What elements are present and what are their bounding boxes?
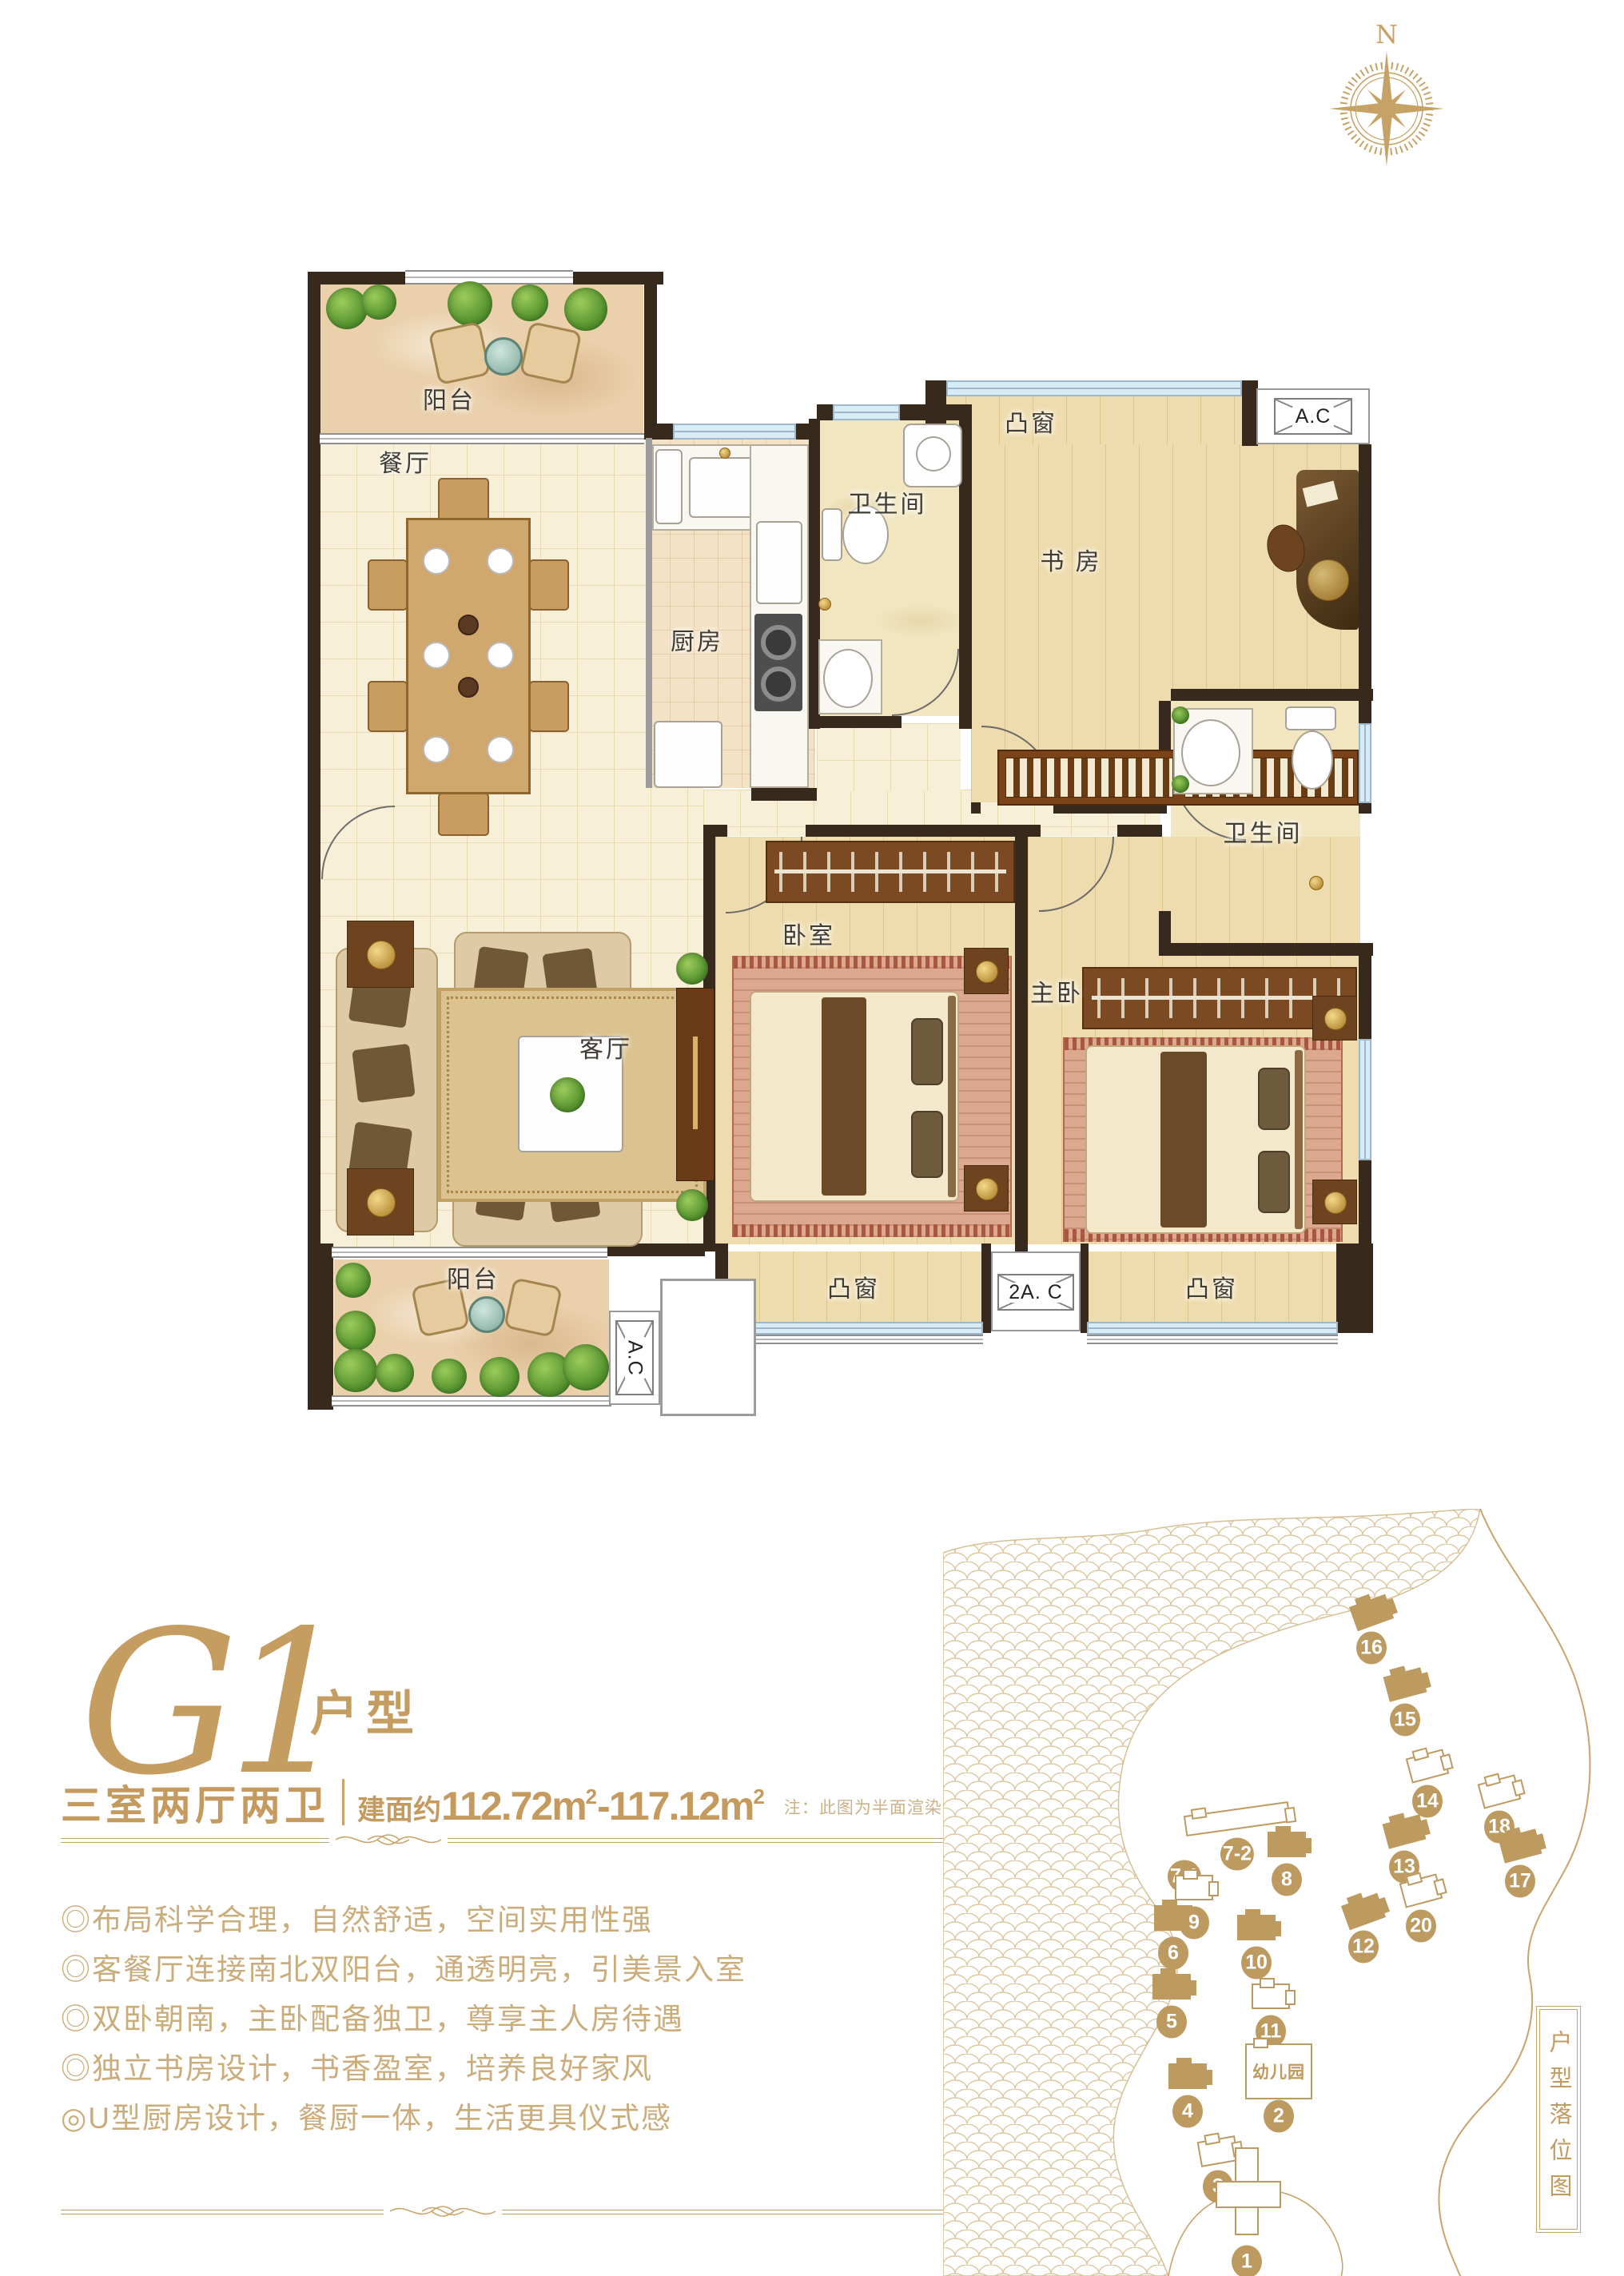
plant <box>432 1359 467 1394</box>
wall <box>1015 825 1028 1251</box>
bath2-sink <box>1181 719 1240 786</box>
balcony-table <box>484 337 523 376</box>
stairwell <box>660 1279 756 1416</box>
building-icon: 幼儿园 <box>1245 2043 1312 2099</box>
wall <box>308 1243 333 1410</box>
plant <box>676 953 708 985</box>
building-number-badge: 4 <box>1172 2095 1203 2128</box>
room-label-bedroom: 卧室 <box>782 916 835 951</box>
wall <box>1117 825 1162 837</box>
wall <box>1171 689 1373 701</box>
ac-mid-label: 2A. C <box>1005 1283 1066 1303</box>
room-label-bay-bedroom: 凸窗 <box>827 1269 880 1304</box>
wall <box>1336 1243 1373 1333</box>
building-icon <box>1383 1667 1427 1701</box>
building-icon <box>1478 1774 1522 1808</box>
unit-logo-suffix: 户型 <box>310 1675 422 1745</box>
feature-item: ◎独立书房设计，书香盈室，培养良好家风 <box>61 2044 746 2094</box>
dining-table <box>406 518 531 794</box>
toilet2-bowl <box>1292 730 1333 790</box>
room-label-dining: 餐厅 <box>379 444 432 479</box>
rule-ornament <box>332 1829 444 1850</box>
plant <box>336 1311 376 1351</box>
divider-rule <box>502 2210 951 2214</box>
room-label-bath1: 卫生间 <box>848 484 927 519</box>
balcony-north-slider <box>320 433 644 444</box>
building-number-badge: 10 <box>1241 1947 1272 1980</box>
study-desk <box>1296 470 1359 630</box>
wall <box>646 438 652 788</box>
wall <box>1242 380 1258 446</box>
dining-chair <box>438 793 489 836</box>
building-number-badge: 9 <box>1179 1907 1209 1940</box>
building-icon <box>1197 2135 1240 2167</box>
master-window <box>1359 1039 1371 1160</box>
building-number-badge: 16 <box>1356 1632 1387 1665</box>
nightstand <box>964 1165 1009 1212</box>
ac-south-label: A.C <box>625 1337 645 1379</box>
divider-rule <box>61 1838 329 1843</box>
plant <box>334 1349 377 1392</box>
headline-divider <box>342 1779 344 1825</box>
wall <box>703 825 727 837</box>
balcony-chair <box>428 321 492 385</box>
feature-list: ◎布局科学合理，自然舒适，空间实用性强 ◎客餐厅连接南北双阳台，通透明亮，引美景… <box>61 1896 746 2143</box>
ac-ne-label: A.C <box>1292 407 1335 427</box>
plant <box>448 281 492 326</box>
wall <box>971 802 981 814</box>
dining-chair <box>529 681 569 732</box>
building-icon <box>1252 1984 1290 2009</box>
plant <box>1172 706 1189 724</box>
site-plan-vertical-title: 户型落位图 <box>1536 2006 1581 2233</box>
site-plan: 1615147-27-181813176920121054113幼儿园21 <box>943 1509 1624 2276</box>
plant <box>480 1357 519 1397</box>
room-label-balcony-south: 阳台 <box>447 1259 500 1295</box>
master-bay-window <box>1087 1322 1338 1335</box>
faucet <box>719 448 730 459</box>
nightstand <box>1312 996 1357 1041</box>
room-label-bay-study: 凸窗 <box>1005 404 1057 439</box>
area-value-1: 112.72m <box>441 1783 586 1829</box>
area-sup-2: 2 <box>753 1785 764 1809</box>
room-label-study: 书 房 <box>1040 542 1101 577</box>
bedroom-bay-window <box>726 1322 983 1335</box>
washer-drum <box>916 436 951 472</box>
balcony-north-window <box>405 270 573 284</box>
wall <box>644 272 657 440</box>
compass-north-label: N <box>1375 21 1398 50</box>
layout-spec: 三室两厅两卫 <box>61 1773 329 1832</box>
plant <box>361 284 396 320</box>
building-icon <box>1235 2147 1259 2235</box>
toilet2-tank <box>1285 706 1336 730</box>
building-icon <box>1168 2063 1207 2089</box>
room-label-bay-master: 凸窗 <box>1185 1269 1238 1304</box>
building-icon <box>1152 1974 1191 1999</box>
tv-cabinet <box>676 988 714 1181</box>
feature-item: ◎双卧朝南，主卧配备独卫，尊享主人房待遇 <box>61 1995 746 2044</box>
wall <box>751 788 817 801</box>
master-bay-sill <box>1087 1335 1338 1344</box>
building-icon <box>1399 1873 1443 1908</box>
nightstand <box>1312 1180 1357 1224</box>
building-icon <box>1268 1832 1306 1857</box>
balcony-south-sill <box>332 1395 611 1407</box>
building-icon <box>1383 1814 1427 1848</box>
room-label-balcony-north: 阳台 <box>423 380 476 416</box>
building-icon <box>1237 1915 1276 1940</box>
balcony-chair <box>504 1277 563 1337</box>
site-buildings: 1615147-27-181813176920121054113幼儿园21 <box>943 1509 1624 2276</box>
room-label-kitchen: 厨房 <box>671 622 723 657</box>
building-icon <box>1349 1594 1394 1631</box>
kitchen-cabinet <box>655 449 683 524</box>
study-bay-floor <box>932 396 1244 446</box>
bathroom1-window <box>833 404 900 420</box>
balcony-chair <box>519 321 583 385</box>
plant <box>564 288 607 331</box>
bedroom-bed <box>750 991 959 1202</box>
building-number-badge: 5 <box>1156 2006 1187 2039</box>
rule-ornament <box>387 2201 499 2222</box>
feature-item: ◎U型厨房设计，餐厨一体，生活更具仪式感 <box>61 2094 746 2143</box>
compass-rose-icon: N <box>1317 21 1457 177</box>
wall <box>308 272 405 284</box>
building-number-badge: 7-2 <box>1220 1838 1254 1871</box>
dining-chair <box>368 559 408 611</box>
fridge <box>654 721 722 788</box>
plant <box>676 1189 708 1221</box>
ac-mid-box: 2A. C <box>997 1274 1074 1311</box>
plant <box>1172 775 1189 793</box>
wall <box>817 404 833 420</box>
table-flowers <box>550 1077 585 1112</box>
cutting-board <box>756 521 802 604</box>
wall <box>806 825 1041 837</box>
divider-rule <box>61 2210 384 2214</box>
dining-chair <box>438 478 489 521</box>
side-table <box>347 1168 414 1235</box>
bedroom-wardrobe <box>766 841 1015 903</box>
wall <box>817 716 902 728</box>
plant <box>326 288 368 329</box>
dining-chair <box>368 681 408 732</box>
area-prefix: 建面约 <box>357 1788 441 1828</box>
building-icon <box>1341 1893 1386 1930</box>
master-bed <box>1085 1045 1306 1234</box>
building-number-badge: 12 <box>1348 1931 1379 1964</box>
building-number-badge: 8 <box>1272 1864 1302 1896</box>
building-number-badge: 20 <box>1406 1910 1436 1943</box>
side-table <box>347 921 414 988</box>
building-icon <box>1499 1828 1542 1863</box>
wall <box>644 424 673 440</box>
building-number-badge: 1 <box>1232 2246 1262 2276</box>
gas-stove <box>754 614 802 711</box>
study-bay-window <box>946 380 1242 396</box>
balcony-table <box>468 1296 505 1333</box>
towel-bar <box>818 598 831 611</box>
divider-rule <box>448 1838 951 1843</box>
area-value-2: -117.12m <box>597 1783 753 1829</box>
living-slider <box>332 1247 607 1258</box>
bedroom-bay-sill <box>726 1335 983 1344</box>
area-sup-1: 2 <box>586 1785 597 1809</box>
feature-item: ◎客餐厅连接南北双阳台，通透明亮，引美景入室 <box>61 1945 746 1995</box>
nightstand <box>964 948 1009 994</box>
plant <box>511 284 548 321</box>
room-label-master: 主卧 <box>1030 973 1083 1009</box>
wall <box>1159 943 1373 956</box>
feature-item: ◎布局科学合理，自然舒适，空间实用性强 <box>61 1896 746 1945</box>
building-number-badge: 17 <box>1505 1865 1535 1898</box>
plant <box>376 1354 414 1392</box>
toilet-tank <box>822 508 842 561</box>
building-number-badge: 14 <box>1412 1785 1443 1818</box>
ac-south-box: A.C <box>615 1320 654 1395</box>
bath1-sink <box>823 649 873 708</box>
plant <box>336 1263 371 1298</box>
floor-drain <box>1309 876 1323 890</box>
ac-ne-box: A.C <box>1274 398 1352 435</box>
room-label-bath2: 卫生间 <box>1224 814 1303 849</box>
dining-chair <box>529 559 569 611</box>
building-number-badge: 15 <box>1390 1704 1420 1737</box>
building-number-badge: 2 <box>1264 2100 1294 2133</box>
building-icon <box>1406 1749 1450 1783</box>
floor-plan-poster: N <box>0 0 1624 2276</box>
wall <box>981 1243 991 1333</box>
wall <box>308 272 320 1259</box>
wall <box>1081 1243 1089 1333</box>
room-label-living: 客厅 <box>579 1029 632 1064</box>
plant <box>563 1344 609 1391</box>
kindergarten-label: 幼儿园 <box>1252 2059 1305 2083</box>
kitchen-window <box>673 424 796 440</box>
bathroom2-window <box>1359 723 1371 803</box>
building-number-badge: 6 <box>1158 1937 1188 1970</box>
hallway-floor-2 <box>817 723 961 791</box>
building-icon <box>1175 1875 1213 1900</box>
